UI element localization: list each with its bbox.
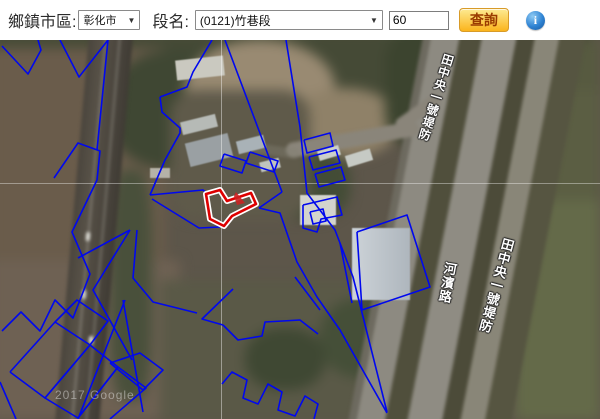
toolbar: 鄉鎮市區: 彰化市 ▼ 段名: (0121)竹巷段 ▼ 查詢 i xyxy=(0,0,600,40)
search-button[interactable]: 查詢 xyxy=(459,8,509,32)
district-select[interactable]: 彰化市 ▼ xyxy=(78,10,140,30)
chevron-down-icon: ▼ xyxy=(366,16,378,25)
chevron-down-icon: ▼ xyxy=(124,16,136,25)
district-label: 鄉鎮市區: xyxy=(8,8,76,32)
road-label: 河濱路 xyxy=(434,260,460,305)
section-select[interactable]: (0121)竹巷段 ▼ xyxy=(195,10,383,30)
info-icon[interactable]: i xyxy=(526,11,545,30)
road-label: 田中央一號堤防 xyxy=(415,52,458,144)
land-parcel-query-app: 鄉鎮市區: 彰化市 ▼ 段名: (0121)竹巷段 ▼ 查詢 i xyxy=(0,0,600,419)
section-select-value: (0121)竹巷段 xyxy=(200,12,271,29)
parcel-number-input[interactable] xyxy=(389,11,449,30)
map-viewport[interactable]: 田中央一號堤防田中央一號堤防河濱路 2017 Google xyxy=(0,40,600,419)
imagery-watermark: 2017 Google xyxy=(55,388,135,402)
section-label: 段名: xyxy=(152,8,188,32)
road-labels-layer: 田中央一號堤防田中央一號堤防河濱路 xyxy=(0,40,600,419)
road-label: 田中央一號堤防 xyxy=(474,236,518,336)
district-select-value: 彰化市 xyxy=(83,12,116,28)
